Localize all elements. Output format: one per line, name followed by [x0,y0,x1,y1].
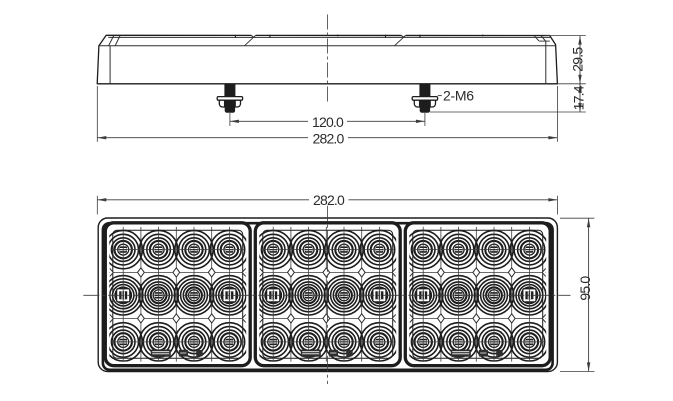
svg-text:29.5: 29.5 [570,47,586,72]
svg-text:17.4: 17.4 [570,85,586,110]
svg-text:282.0: 282.0 [313,192,345,208]
svg-text:95.0: 95.0 [577,276,593,301]
svg-text:120.0: 120.0 [312,114,344,130]
svg-text:2-M6: 2-M6 [443,87,474,103]
svg-text:282.0: 282.0 [312,131,344,147]
